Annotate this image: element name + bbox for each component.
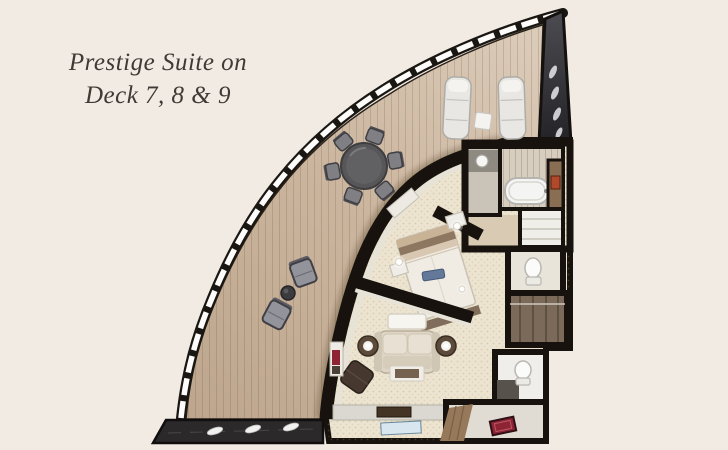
toilet-tank bbox=[526, 277, 541, 285]
entrance-hall bbox=[440, 402, 546, 441]
sofa-table bbox=[388, 314, 426, 329]
toilet-tank bbox=[516, 378, 530, 385]
bedside-lamp bbox=[451, 220, 463, 232]
bedside-lamp bbox=[393, 256, 405, 268]
sun-lounger bbox=[442, 76, 471, 139]
floorplan-illustration bbox=[0, 0, 728, 450]
reading-lamp bbox=[457, 284, 467, 294]
dining-chair bbox=[323, 162, 341, 180]
towel-closet bbox=[520, 209, 563, 247]
wall-art bbox=[551, 176, 560, 189]
coffee-table bbox=[390, 366, 424, 381]
side-table bbox=[358, 336, 378, 356]
wc-room bbox=[508, 249, 563, 293]
tv-console bbox=[333, 405, 445, 420]
tv-screen bbox=[381, 421, 422, 435]
wardrobe bbox=[508, 293, 567, 345]
promenade-walkway bbox=[153, 420, 323, 443]
sink bbox=[476, 155, 488, 167]
guest-toilet-room bbox=[495, 352, 546, 402]
glass-wall bbox=[539, 11, 571, 143]
dining-chair bbox=[387, 151, 405, 169]
bookshelf bbox=[330, 342, 343, 376]
suite-floorplan-page: Prestige Suite on Deck 7, 8 & 9 bbox=[0, 0, 728, 450]
balcony-coffee-table bbox=[281, 286, 295, 300]
toilet bbox=[525, 258, 541, 278]
toilet bbox=[515, 361, 531, 379]
side-table bbox=[436, 336, 456, 356]
sun-lounger bbox=[498, 77, 526, 140]
lounger-side-table bbox=[474, 112, 492, 130]
tv bbox=[377, 407, 411, 417]
dining-table bbox=[341, 143, 387, 189]
